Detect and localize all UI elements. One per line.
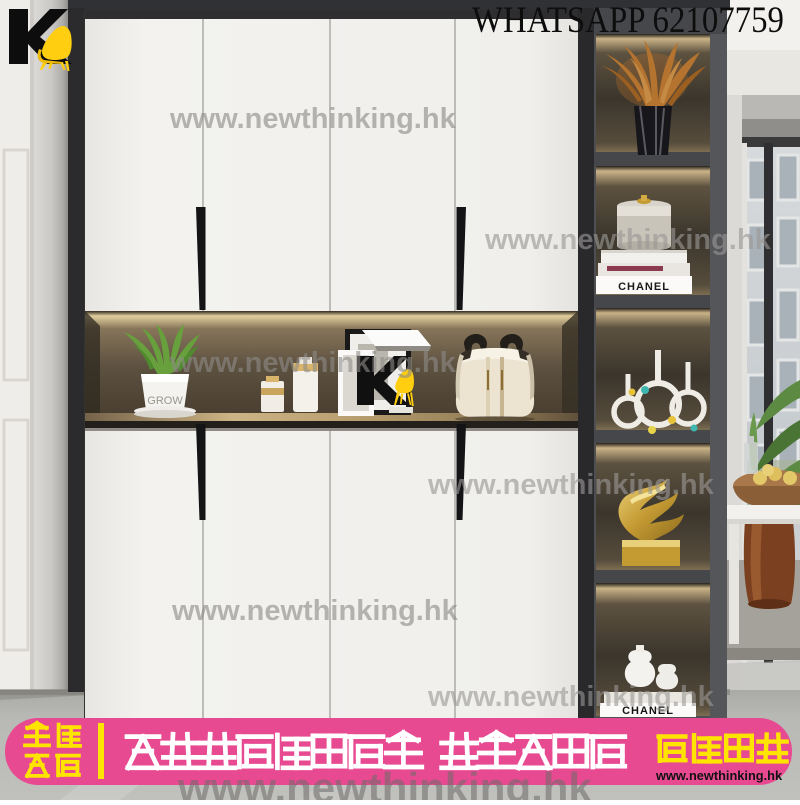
svg-text:www.newthinking.hk: www.newthinking.hk [427,681,715,713]
svg-text:www.newthinking.hk: www.newthinking.hk [169,103,457,135]
svg-text:www.newthinking.hk: www.newthinking.hk [484,224,772,256]
svg-text:www.newthinking.hk: www.newthinking.hk [427,469,715,501]
svg-text:www.newthinking.hk: www.newthinking.hk [169,347,457,379]
svg-text:WHATSAPP 62107759: WHATSAPP 62107759 [472,0,784,41]
svg-text:www.newthinking.hk: www.newthinking.hk [655,768,783,783]
svg-text:www.newthinking.hk: www.newthinking.hk [171,595,459,627]
svg-text:GROW: GROW [147,395,183,407]
svg-text:CHANEL: CHANEL [618,281,670,293]
